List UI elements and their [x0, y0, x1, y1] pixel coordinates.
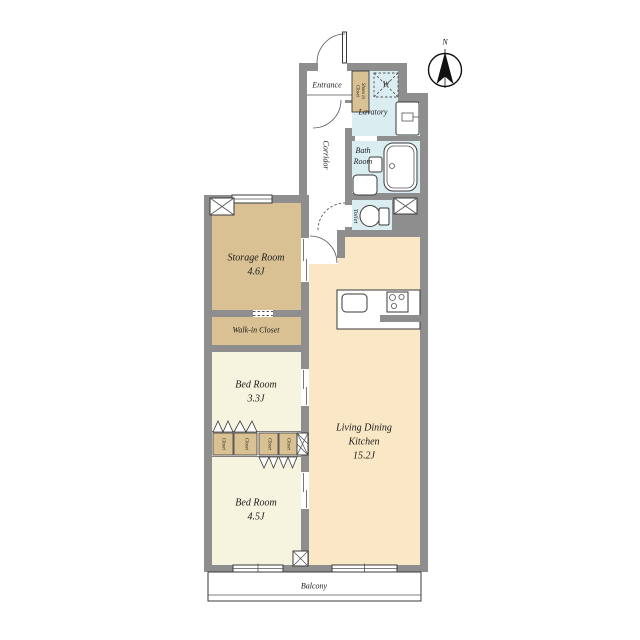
ldk-label-line2: Kitchen — [348, 435, 379, 449]
walkin-closet-opening — [253, 310, 273, 317]
storage-room-label: Storage Room — [228, 251, 285, 265]
walkin-closet-label: Walk-in Closet — [232, 326, 279, 337]
stove-icon — [387, 292, 408, 312]
pipe-space-toilet-icon — [394, 198, 417, 214]
compass-north-label: N — [442, 38, 447, 49]
bedroom45-sliding-door-icon — [301, 472, 309, 509]
toilet-icon — [360, 206, 389, 227]
corridor-label: Corridor — [320, 141, 331, 170]
bedroom45-size: 4.5J — [248, 510, 265, 524]
storage-room-size: 4.6J — [248, 265, 265, 279]
shoes-closet-label: Shoes in Closet — [354, 83, 365, 99]
pipe-space-bedroom45-icon — [293, 551, 308, 566]
storage-sliding-door-icon — [301, 238, 309, 282]
pipe-space-storage-icon — [210, 198, 234, 215]
closet-label-1: Closet — [220, 438, 226, 450]
washer-label: W — [383, 80, 390, 91]
toilet-label: Toilet — [352, 209, 361, 224]
storage-window-icon — [232, 195, 272, 203]
lavatory-label: Lavatory — [359, 108, 388, 119]
balcony-label: Balcony — [301, 582, 327, 593]
ldk-size: 15.2J — [353, 449, 375, 463]
bedroom33-sliding-door-icon — [301, 369, 309, 406]
ldk-fill — [309, 237, 420, 565]
kitchen-counter-icon — [337, 290, 422, 329]
ldk-label-line1: Living Dining — [336, 421, 392, 435]
floor-plan-drawing — [0, 0, 640, 640]
bedroom33-label: Bed Room — [235, 378, 276, 392]
bathroom-label: Bath Room — [354, 146, 373, 168]
north-arrow-icon — [429, 49, 462, 88]
wash-basin-icon — [396, 102, 419, 135]
kitchen-sink-icon — [342, 294, 367, 312]
closet-label-2: Closet — [243, 438, 249, 450]
closet-label-3: Closet — [266, 438, 272, 450]
corridor-door-area-fill — [309, 230, 338, 264]
entrance-label: Entrance — [312, 81, 341, 92]
entrance-door-icon — [317, 32, 347, 63]
floor-plan: Entrance Shoes in Closet W Lavatory Bath… — [0, 0, 640, 640]
bathroom-door-gap — [355, 136, 377, 141]
closet-label-4: Closet — [285, 438, 291, 450]
bedroom33-size: 3.3J — [248, 392, 265, 406]
bedroom45-label: Bed Room — [235, 496, 276, 510]
lavatory-door-gap — [345, 103, 352, 128]
pipe-space-closet-icon — [297, 433, 308, 455]
